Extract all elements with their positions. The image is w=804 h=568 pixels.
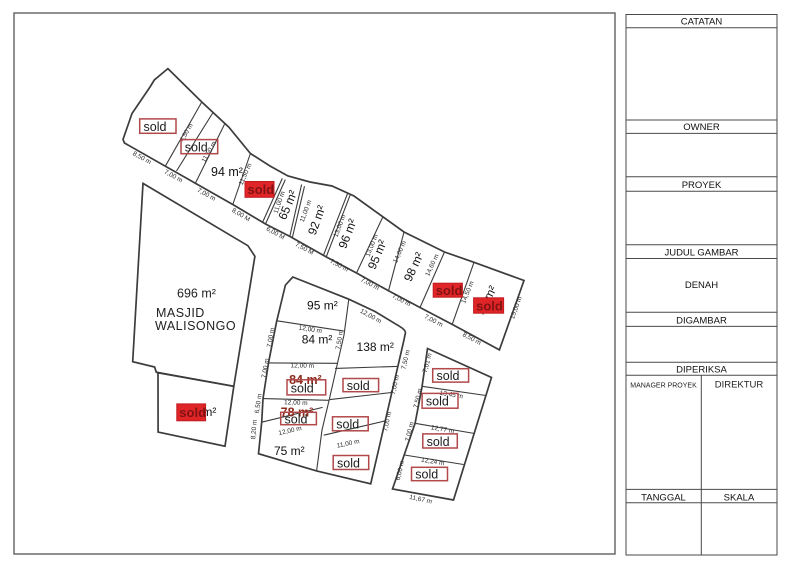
svg-text:sold: sold bbox=[476, 298, 503, 313]
svg-text:75 m²: 75 m² bbox=[274, 444, 305, 458]
svg-text:sold: sold bbox=[337, 456, 360, 470]
svg-text:DIREKTUR: DIREKTUR bbox=[715, 380, 764, 391]
svg-text:95 m²: 95 m² bbox=[307, 299, 338, 313]
svg-text:sold: sold bbox=[437, 369, 460, 383]
svg-text:MASJID: MASJID bbox=[156, 306, 205, 320]
svg-text:sold: sold bbox=[248, 182, 275, 197]
svg-text:DIPERIKSA: DIPERIKSA bbox=[676, 364, 727, 375]
svg-text:sold: sold bbox=[285, 412, 308, 426]
svg-text:OWNER: OWNER bbox=[683, 122, 720, 133]
svg-text:CATATAN: CATATAN bbox=[681, 17, 723, 28]
svg-text:TANGGAL: TANGGAL bbox=[641, 492, 686, 503]
svg-text:WALISONGO: WALISONGO bbox=[155, 319, 236, 333]
svg-text:PROYEK: PROYEK bbox=[682, 180, 722, 191]
svg-text:sold: sold bbox=[291, 381, 314, 395]
svg-text:sold: sold bbox=[426, 395, 449, 409]
svg-text:12,00 m: 12,00 m bbox=[291, 362, 315, 369]
svg-text:sold: sold bbox=[436, 283, 463, 298]
svg-text:138 m²: 138 m² bbox=[357, 340, 394, 354]
svg-text:sold: sold bbox=[415, 468, 438, 482]
svg-text:DIGAMBAR: DIGAMBAR bbox=[676, 315, 727, 326]
svg-text:sold: sold bbox=[347, 379, 370, 393]
svg-text:sold: sold bbox=[144, 120, 167, 134]
svg-text:12,00 m: 12,00 m bbox=[284, 399, 308, 407]
svg-text:sold: sold bbox=[427, 435, 450, 449]
svg-text:94 m²: 94 m² bbox=[211, 165, 243, 179]
svg-text:696 m²: 696 m² bbox=[177, 287, 216, 301]
svg-text:SKALA: SKALA bbox=[724, 492, 755, 503]
svg-text:MANAGER PROYEK: MANAGER PROYEK bbox=[630, 383, 697, 390]
svg-text:JUDUL GAMBAR: JUDUL GAMBAR bbox=[664, 248, 738, 259]
svg-text:84 m²: 84 m² bbox=[302, 333, 333, 347]
svg-text:sold: sold bbox=[185, 140, 208, 154]
svg-text:DENAH: DENAH bbox=[685, 280, 718, 291]
svg-text:sold: sold bbox=[336, 418, 359, 432]
svg-text:sold: sold bbox=[179, 405, 206, 420]
